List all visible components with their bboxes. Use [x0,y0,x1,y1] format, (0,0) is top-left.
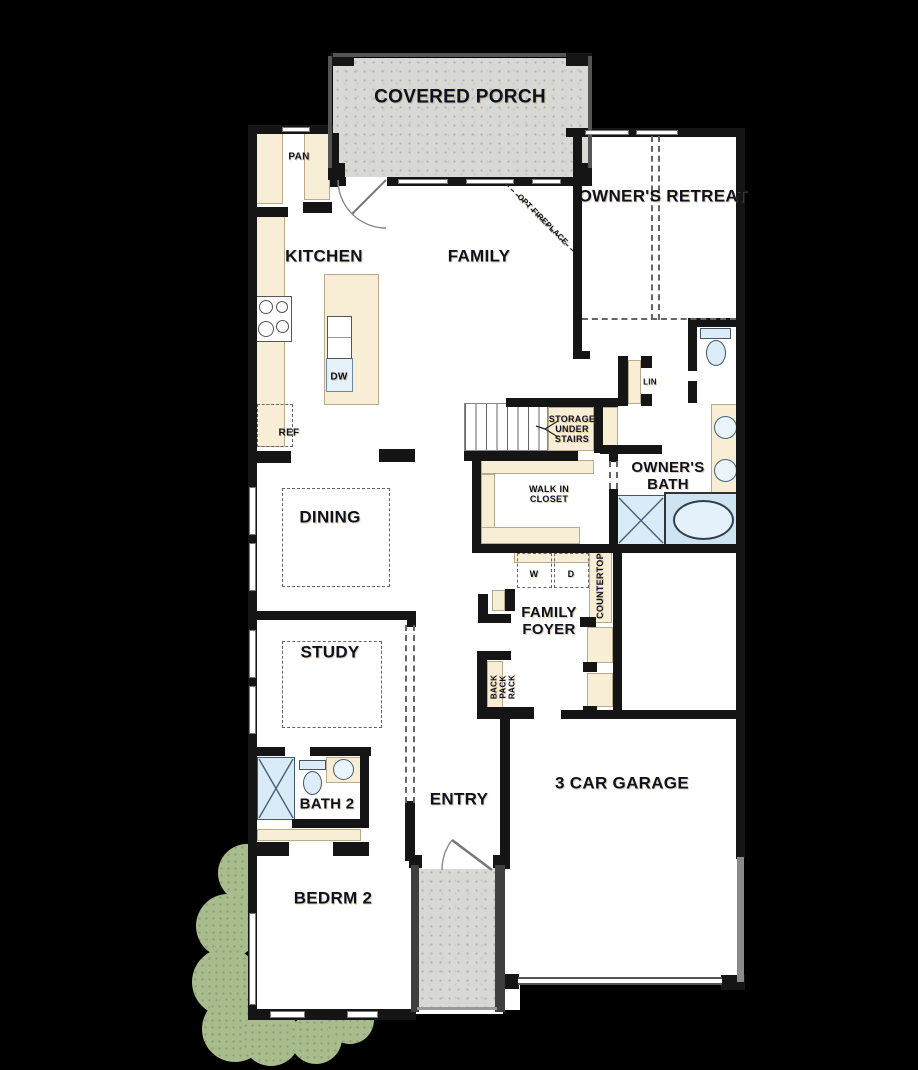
label-back-pack-rack: BACK PACK RACK [491,675,518,699]
wall [478,614,511,623]
porch-border [333,53,566,57]
owners-toilet-bowl [706,340,726,366]
label-ref: REF [279,427,300,438]
owners-tub-basin [673,500,734,540]
covered-porch-floor [333,58,588,179]
foyer-cubby-1 [587,627,613,663]
garage-side-trim [737,857,744,982]
wall [477,651,487,715]
retreat-opt-line [651,136,653,320]
label-lin: LIN [643,379,657,388]
wall [506,398,618,407]
label-owners-bath: OWNER'S BATH [631,460,704,494]
label-covered-porch: COVERED PORCH [374,86,546,107]
wall [500,719,510,869]
wall [464,451,578,461]
floor-plan: COVERED PORCHPANOWNER'S RETREATKITCHENFA… [0,0,918,1070]
burner [259,300,273,314]
wall [505,589,515,611]
owners-sink-1 [714,416,737,439]
window [282,127,310,132]
bath2-toilet-tank [299,760,326,770]
burner [276,320,289,333]
wall [583,662,597,672]
bedroom-hall-shelf [257,829,361,841]
window [466,179,514,184]
label-kitchen: KITCHEN [285,246,363,265]
window [249,686,256,734]
owners-shower [617,495,665,546]
label-dw: DW [330,371,347,382]
window [249,487,256,535]
wall [618,356,628,406]
wall [292,819,369,828]
refrigerator [257,404,293,447]
pantry-shelf-left [256,133,283,204]
garage-floor [503,714,739,984]
label-walk-in-closet: WALK IN CLOSET [529,484,569,504]
window [347,1011,378,1018]
entry-porch-edge [417,1007,497,1010]
retreat-divider [582,318,736,320]
closet-shelf-top [481,460,594,474]
dining-table [282,488,390,587]
label-bedrm-2: BEDRM 2 [294,888,373,907]
wall [609,489,618,549]
porch-border [588,56,592,168]
owners-sink-2 [714,459,737,482]
label-dryer: D [568,569,575,579]
wall [573,133,582,359]
wall [256,842,289,856]
pantry-shelf-right [304,133,330,200]
label-countertop: COUNTERTOP [595,553,605,619]
wall [688,321,697,371]
wall [580,617,596,627]
entry-cased-opening [413,625,415,803]
bath2-toilet-bowl [303,771,322,795]
entry-porch-wall [495,865,505,1012]
window [249,543,256,591]
window [398,179,448,184]
wall [379,449,415,462]
closet-shelf-bottom [481,527,580,544]
bath2-sink [333,759,354,780]
window [636,130,678,135]
front-door-opening [422,857,493,869]
label-owners-retreat: OWNER'S RETREAT [579,186,748,205]
wall [256,451,291,463]
wall [561,710,745,719]
entry-cased-opening [405,625,407,803]
window [249,913,256,1005]
label-family: FAMILY [448,246,511,265]
label-storage-under-stairs: STORAGE UNDER STAIRS [549,414,595,444]
wall [500,710,531,719]
wall [688,381,697,403]
window [249,630,256,678]
bath2-shower [257,757,295,820]
label-entry: ENTRY [430,789,489,808]
closet-door-dash [616,461,618,489]
entry-porch-wall [411,865,419,1012]
label-garage: 3 CAR GARAGE [555,773,689,792]
owners-toilet-tank [700,328,731,339]
entry-porch-floor [418,868,497,1008]
wall [360,754,369,826]
wall [600,445,662,454]
closet-shelf-left [481,474,495,530]
wall [248,747,285,756]
porch-border [328,56,332,168]
burner [276,301,288,313]
wall [248,611,416,620]
foyer-niche [492,590,505,611]
stairs [464,403,548,451]
window [532,179,561,184]
wall [736,128,745,859]
wall [472,451,481,552]
label-bath-2: BATH 2 [300,797,355,814]
wall [613,553,622,718]
wall [303,202,332,213]
label-pan: PAN [288,151,309,162]
wall [641,356,652,368]
wall [248,207,288,217]
retreat-opt-line [658,136,660,320]
label-dining: DINING [299,507,360,526]
label-washer: W [530,569,539,579]
label-family-foyer: FAMILY FOYER [521,605,576,639]
wall [472,544,745,553]
wall [641,394,652,406]
garage-door [518,977,722,985]
porch-door-opening [346,177,387,186]
wall [573,351,590,359]
closet-door-dash [609,461,611,489]
island-sink-divider [328,337,351,338]
window [585,130,629,135]
wall [333,842,369,856]
burner [258,321,274,337]
label-study: STUDY [300,642,359,661]
foyer-cubby-2 [587,673,613,707]
linen-shelf [628,360,641,404]
window [270,1011,305,1018]
wall [405,801,415,861]
